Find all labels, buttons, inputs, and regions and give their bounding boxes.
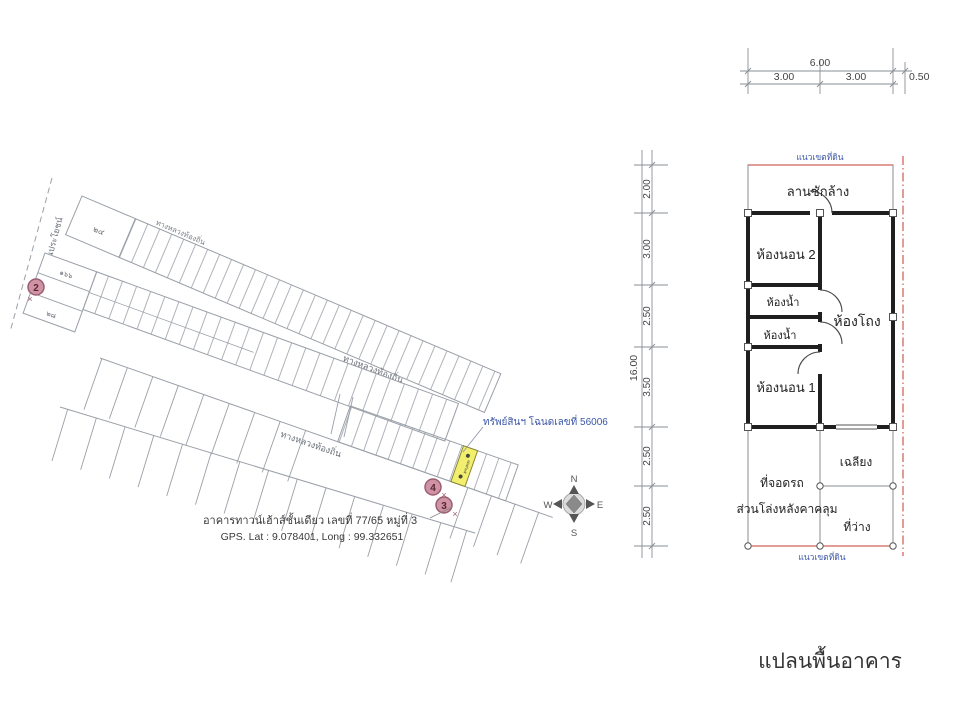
dim-left-seg4: 3.50 bbox=[642, 377, 653, 397]
room-label-hall: ห้องโถง bbox=[833, 313, 880, 329]
room-label-carport: ที่จอดรถ bbox=[760, 474, 804, 490]
dim-left-seg5: 2.50 bbox=[642, 446, 653, 466]
dim-top-seg2: 3.00 bbox=[846, 71, 867, 83]
bedroom1-door-arc bbox=[798, 352, 820, 374]
marker-4-number: 4 bbox=[430, 483, 436, 494]
dimension-chain-left bbox=[634, 150, 668, 558]
room-label-bath1: ห้องน้ำ bbox=[767, 294, 800, 309]
map-caption-building: อาคารทาวน์เฮ้าส์ชั้นเดียว เลขที่ 77/65 ห… bbox=[203, 512, 417, 527]
compass-east-label: E bbox=[597, 500, 603, 511]
room-label-vacant: ที่ว่าง bbox=[843, 518, 870, 534]
compass-west-label: W bbox=[544, 500, 553, 511]
boundary-label-bottom: แนวเขตที่ดิน bbox=[798, 551, 845, 562]
room-label-bedroom1: ห้องนอน 1 bbox=[756, 380, 815, 395]
room-label-covered-area: ส่วนโล่งหลังคาคลุม bbox=[736, 502, 837, 517]
room-label-bath2: ห้องน้ำ bbox=[764, 327, 797, 342]
dim-top-side: 0.50 bbox=[909, 71, 930, 83]
boundary-label-top: แนวเขตที่ดิน bbox=[796, 151, 843, 162]
property-deed-note: ทรัพย์สินฯ โฉนดเลขที่ 56006 bbox=[483, 414, 608, 428]
bath1-door-arc bbox=[820, 290, 842, 312]
compass-rose-icon: N S W E bbox=[544, 474, 604, 539]
dim-left-seg3: 2.50 bbox=[642, 306, 653, 326]
dim-top-seg1: 3.00 bbox=[774, 71, 795, 83]
dimension-chain-top bbox=[740, 48, 912, 94]
marker-3-number: 3 bbox=[441, 501, 447, 512]
compass-south-label: S bbox=[571, 528, 577, 539]
window bbox=[836, 425, 877, 429]
floor-plan-title: แปลนพื้นอาคาร bbox=[758, 646, 902, 673]
room-label-bedroom2: ห้องนอน 2 bbox=[756, 247, 815, 262]
dim-left-seg2: 3.00 bbox=[642, 239, 653, 259]
survey-marker-3: 3 × bbox=[436, 497, 458, 519]
floor-plan: 6.00 3.00 3.00 0.50 16.00 2.00 3.00 2.50… bbox=[628, 48, 930, 673]
room-label-porch: เฉลียง bbox=[840, 455, 873, 469]
marker-2-x-icon: × bbox=[27, 294, 32, 304]
document-canvas: ทางสาธารณประโยชน์ ๒๔ ทางหลวงท้องถิ่น ทาง… bbox=[0, 0, 960, 720]
scanned-survey-document: ทางสาธารณประโยชน์ ๒๔ ทางหลวงท้องถิ่น ทาง… bbox=[0, 0, 960, 720]
dim-left-total: 16.00 bbox=[628, 355, 640, 381]
marker-3-x-icon: × bbox=[452, 509, 457, 519]
marker-2-number: 2 bbox=[33, 283, 39, 294]
dim-left-seg1: 2.00 bbox=[642, 179, 653, 199]
compass-north-label: N bbox=[571, 474, 578, 485]
dim-left-seg6: 2.50 bbox=[642, 506, 653, 526]
dim-top-total: 6.00 bbox=[810, 57, 831, 69]
room-label-laundry: ลานซักล้าง bbox=[787, 184, 849, 199]
site-map: ทางสาธารณประโยชน์ ๒๔ ทางหลวงท้องถิ่น ทาง… bbox=[10, 178, 608, 585]
map-caption-gps: GPS. Lat : 9.078401, Long : 99.332651 bbox=[221, 531, 404, 543]
